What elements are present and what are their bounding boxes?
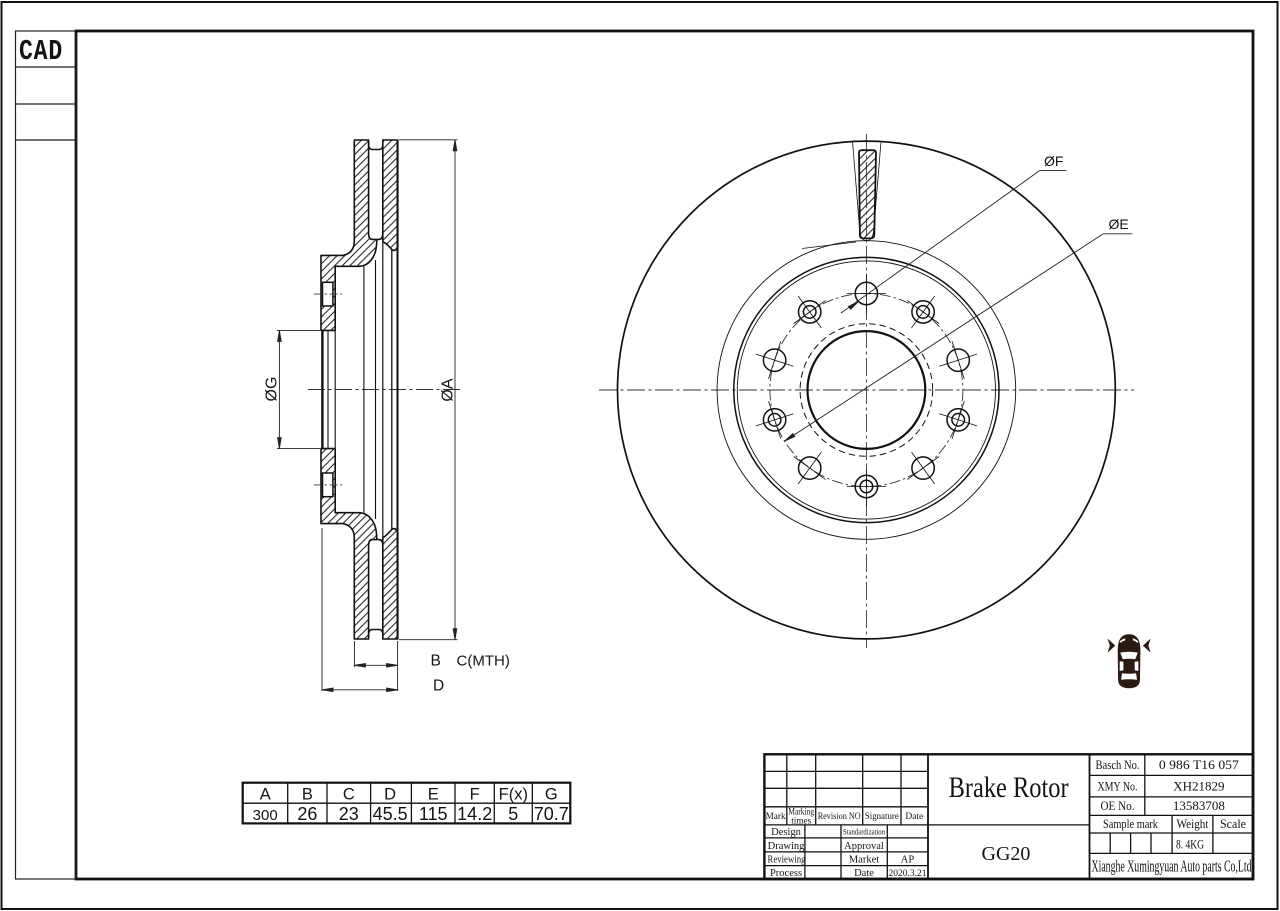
svg-text:G: G <box>545 786 558 804</box>
svg-text:Basch No.: Basch No. <box>1096 757 1140 772</box>
svg-text:OE No.: OE No. <box>1101 798 1135 813</box>
svg-text:times: times <box>791 817 811 827</box>
svg-text:Scale: Scale <box>1220 817 1246 831</box>
svg-text:A: A <box>260 786 271 804</box>
svg-text:45.5: 45.5 <box>373 804 408 824</box>
svg-text:Mark: Mark <box>766 812 786 822</box>
svg-text:Signature: Signature <box>865 812 899 822</box>
svg-text:ØE: ØE <box>1109 216 1129 232</box>
svg-text:ØF: ØF <box>1044 153 1063 169</box>
svg-text:Brake Rotor: Brake Rotor <box>949 771 1069 804</box>
svg-text:AP: AP <box>901 855 915 866</box>
svg-text:Design: Design <box>771 827 801 838</box>
svg-text:0 986 T16 057: 0 986 T16 057 <box>1159 757 1240 772</box>
svg-text:E: E <box>428 786 439 804</box>
svg-text:Sample mark: Sample mark <box>1103 817 1159 831</box>
svg-text:F(x): F(x) <box>499 786 528 804</box>
svg-text:D: D <box>433 678 444 695</box>
svg-text:B: B <box>431 653 441 670</box>
svg-text:Revision NO: Revision NO <box>818 812 861 822</box>
svg-text:2020.3.21: 2020.3.21 <box>889 869 927 879</box>
svg-text:CAD: CAD <box>19 35 63 68</box>
svg-text:70.7: 70.7 <box>534 804 569 824</box>
svg-text:8. 4KG: 8. 4KG <box>1176 837 1204 852</box>
svg-text:13583708: 13583708 <box>1173 798 1225 813</box>
svg-text:Standardization: Standardization <box>843 827 886 837</box>
svg-text:C(MTH): C(MTH) <box>457 653 510 670</box>
svg-text:Xianghe Xumingyuan Auto parts: Xianghe Xumingyuan Auto parts Co,Ltd <box>1092 857 1252 876</box>
svg-text:Date: Date <box>905 812 923 822</box>
svg-text:Weight: Weight <box>1177 817 1209 831</box>
svg-text:Approval: Approval <box>844 841 884 852</box>
svg-text:Date: Date <box>854 868 874 879</box>
svg-text:115: 115 <box>419 804 448 824</box>
svg-text:XH21829: XH21829 <box>1173 778 1224 793</box>
svg-text:Drawing: Drawing <box>768 841 805 852</box>
svg-text:Process: Process <box>770 868 802 879</box>
svg-text:23: 23 <box>339 804 359 824</box>
svg-text:C: C <box>343 786 355 804</box>
svg-text:Reviewing: Reviewing <box>768 855 807 866</box>
svg-text:B: B <box>302 786 313 804</box>
svg-text:F: F <box>470 786 480 804</box>
svg-text:5: 5 <box>508 804 518 824</box>
svg-text:ØA: ØA <box>440 378 457 401</box>
svg-text:26: 26 <box>297 804 317 824</box>
svg-text:XMY No.: XMY No. <box>1098 778 1138 793</box>
svg-text:14.2: 14.2 <box>457 804 492 824</box>
svg-text:GG20: GG20 <box>982 843 1031 865</box>
svg-text:ØG: ØG <box>264 377 281 402</box>
svg-text:Market: Market <box>849 855 879 866</box>
svg-text:300: 300 <box>253 807 278 824</box>
svg-text:D: D <box>384 786 396 804</box>
